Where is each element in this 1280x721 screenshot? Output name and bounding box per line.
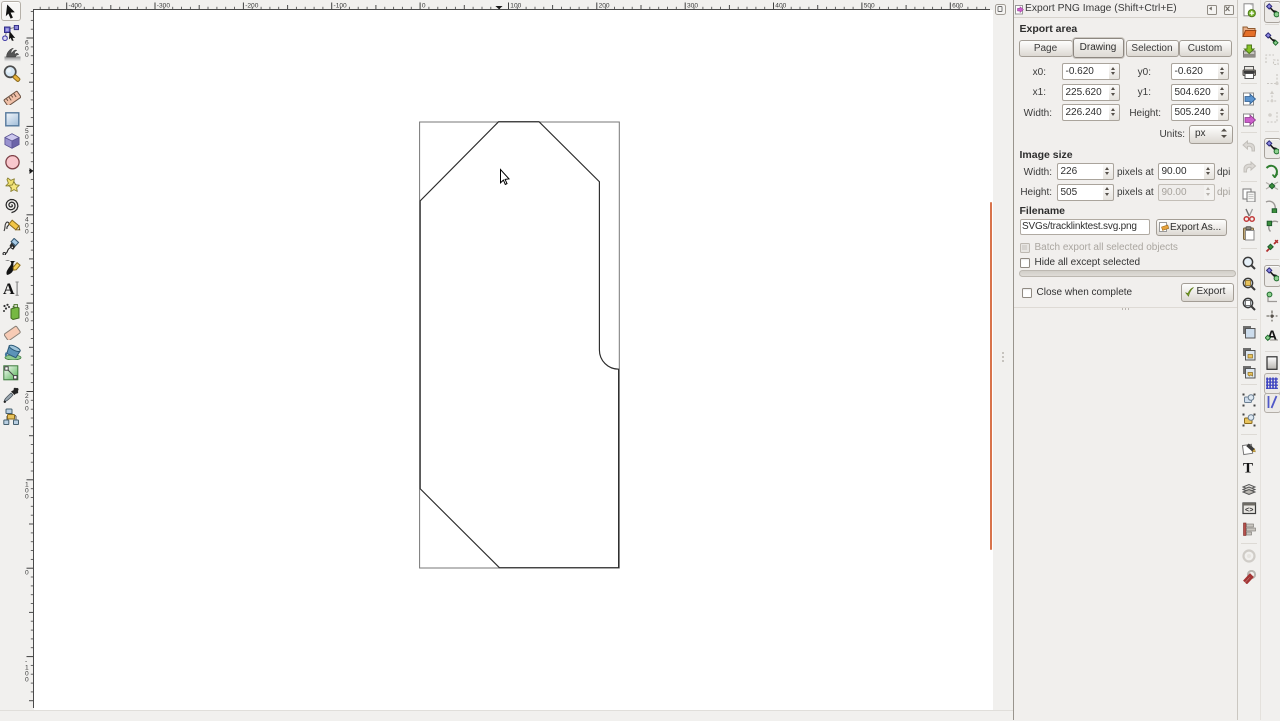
svg-text:<>: <> [1245, 507, 1253, 515]
svg-text:A: A [3, 281, 15, 296]
svg-text:T: T [1243, 461, 1253, 475]
